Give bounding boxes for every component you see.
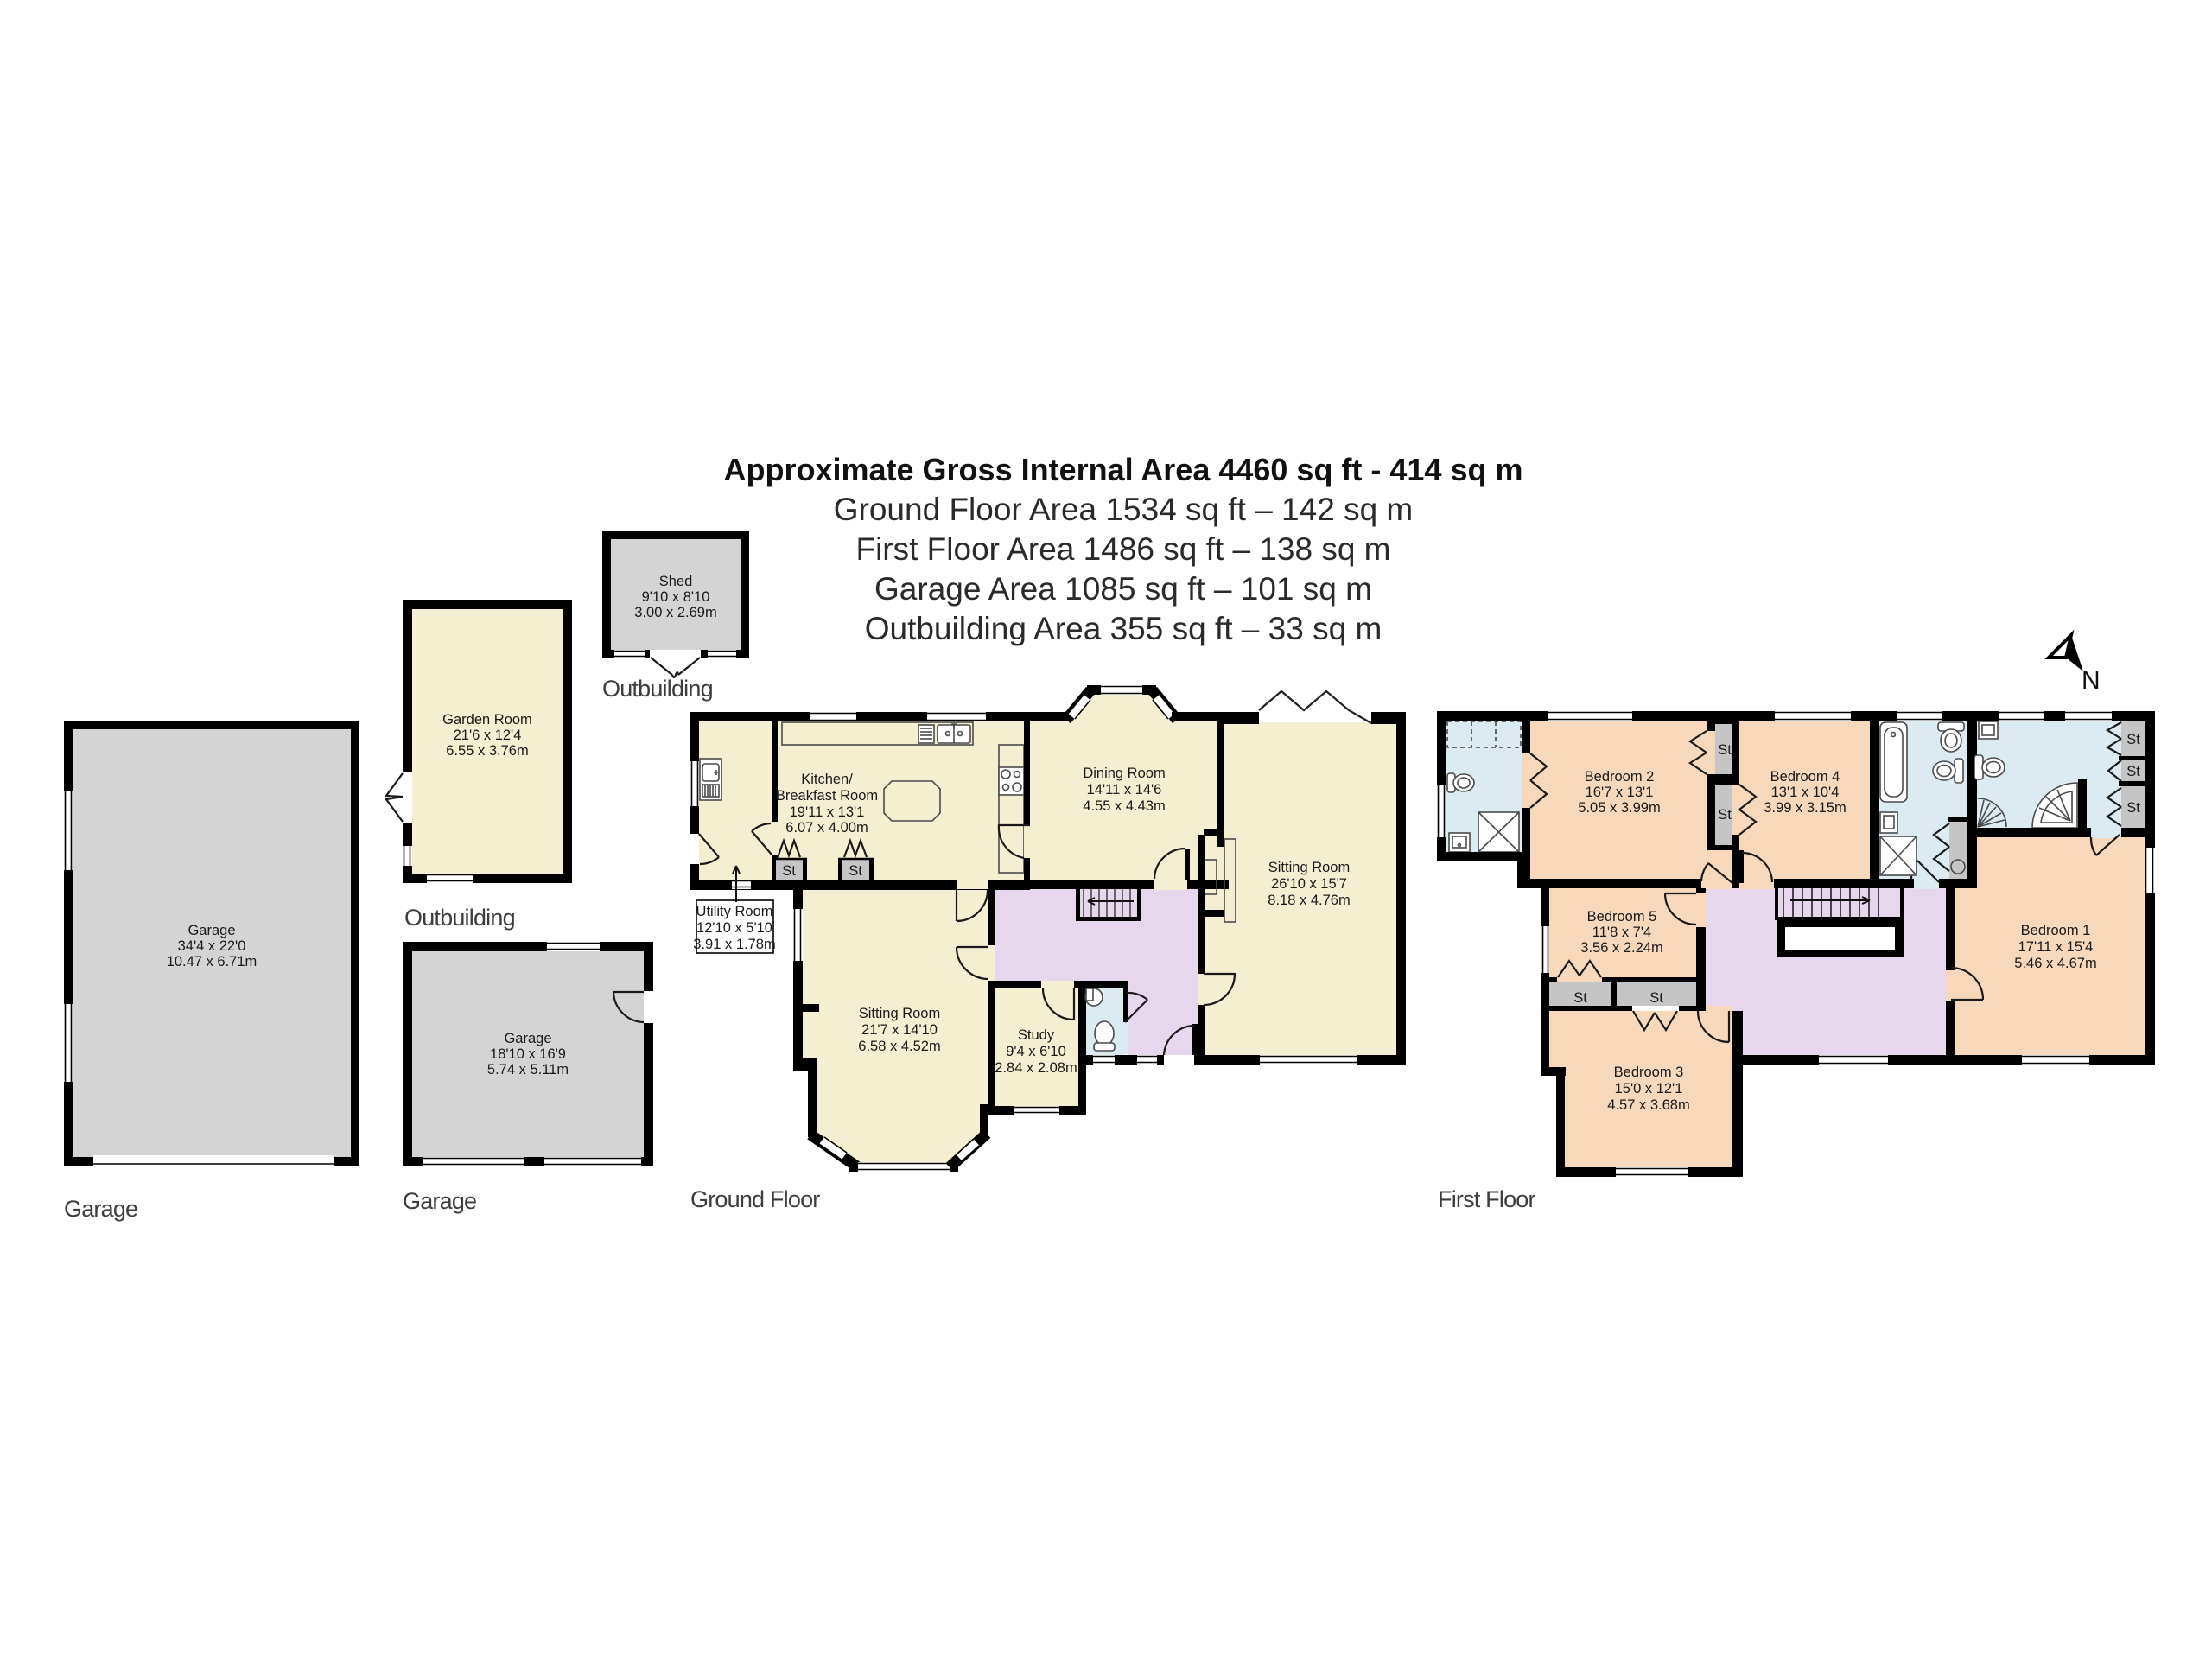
svg-text:16'7 x 13'1: 16'7 x 13'1 bbox=[1586, 785, 1654, 800]
svg-text:4.55 x 4.43m: 4.55 x 4.43m bbox=[1083, 798, 1165, 814]
svg-text:Garage: Garage bbox=[188, 923, 235, 938]
svg-text:Bedroom 4: Bedroom 4 bbox=[1770, 769, 1840, 785]
svg-text:St: St bbox=[849, 863, 862, 879]
svg-text:12'10 x 5'10: 12'10 x 5'10 bbox=[696, 920, 772, 936]
svg-text:5.05 x 3.99m: 5.05 x 3.99m bbox=[1578, 800, 1660, 816]
svg-text:Shed: Shed bbox=[659, 574, 693, 589]
svg-text:21'6 x 12'4: 21'6 x 12'4 bbox=[454, 728, 522, 743]
svg-text:11'8 x 7'4: 11'8 x 7'4 bbox=[1592, 925, 1651, 940]
svg-text:Study: Study bbox=[1018, 1027, 1055, 1043]
svg-text:Sitting Room: Sitting Room bbox=[1268, 860, 1350, 875]
svg-text:15'0 x 12'1: 15'0 x 12'1 bbox=[1615, 1081, 1683, 1096]
svg-text:10.47 x 6.71m: 10.47 x 6.71m bbox=[167, 954, 257, 969]
svg-text:3.91 x 1.78m: 3.91 x 1.78m bbox=[693, 937, 775, 952]
svg-text:Garage Area 1085 sq ft – 101 s: Garage Area 1085 sq ft – 101 sq m bbox=[874, 571, 1372, 607]
svg-text:Ground Floor: Ground Floor bbox=[690, 1186, 820, 1212]
svg-text:6.55 x 3.76m: 6.55 x 3.76m bbox=[446, 743, 528, 759]
svg-text:St: St bbox=[1718, 807, 1732, 823]
svg-text:Garage: Garage bbox=[403, 1188, 476, 1214]
svg-text:Garden Room: Garden Room bbox=[442, 712, 532, 728]
svg-text:First Floor: First Floor bbox=[1438, 1186, 1536, 1212]
svg-text:St: St bbox=[1649, 990, 1663, 1006]
svg-text:Bedroom 2: Bedroom 2 bbox=[1585, 769, 1655, 785]
svg-text:4.57 x 3.68m: 4.57 x 3.68m bbox=[1607, 1097, 1689, 1113]
svg-text:2.84 x 2.08m: 2.84 x 2.08m bbox=[995, 1060, 1077, 1076]
svg-text:13'1 x 10'4: 13'1 x 10'4 bbox=[1771, 785, 1840, 800]
svg-text:Sitting Room: Sitting Room bbox=[859, 1006, 940, 1021]
svg-text:Garage: Garage bbox=[504, 1031, 551, 1046]
svg-text:Ground Floor Area 1534 sq ft –: Ground Floor Area 1534 sq ft – 142 sq m bbox=[834, 492, 1414, 527]
svg-text:5.46 x 4.67m: 5.46 x 4.67m bbox=[2014, 956, 2096, 971]
svg-text:34'4 x 22'0: 34'4 x 22'0 bbox=[178, 938, 246, 954]
svg-text:Breakfast Room: Breakfast Room bbox=[776, 788, 878, 804]
svg-text:Outbuilding: Outbuilding bbox=[404, 905, 515, 931]
svg-text:Approximate Gross Internal Are: Approximate Gross Internal Area 4460 sq … bbox=[724, 452, 1523, 487]
svg-text:First Floor Area 1486 sq ft –: First Floor Area 1486 sq ft – 138 sq m bbox=[855, 531, 1390, 567]
svg-text:Bedroom 5: Bedroom 5 bbox=[1587, 909, 1657, 925]
svg-text:N: N bbox=[2082, 666, 2101, 695]
svg-text:3.00 x 2.69m: 3.00 x 2.69m bbox=[634, 605, 716, 620]
svg-text:9'10 x 8'10: 9'10 x 8'10 bbox=[642, 589, 710, 605]
svg-text:St: St bbox=[2126, 800, 2140, 816]
svg-text:14'11 x 14'6: 14'11 x 14'6 bbox=[1087, 782, 1162, 798]
svg-text:St: St bbox=[782, 863, 796, 879]
svg-text:St: St bbox=[1573, 990, 1587, 1006]
svg-text:Garage: Garage bbox=[64, 1196, 137, 1222]
svg-text:Outbuilding: Outbuilding bbox=[602, 676, 713, 702]
svg-text:Bedroom 1: Bedroom 1 bbox=[2021, 923, 2091, 938]
svg-text:Bedroom 3: Bedroom 3 bbox=[1614, 1065, 1684, 1080]
svg-text:St: St bbox=[2126, 764, 2140, 779]
svg-text:19'11 x 13'1: 19'11 x 13'1 bbox=[790, 804, 865, 820]
svg-text:21'7 x 14'10: 21'7 x 14'10 bbox=[861, 1022, 938, 1038]
svg-text:17'11 x 15'4: 17'11 x 15'4 bbox=[2018, 939, 2094, 955]
svg-text:6.07 x 4.00m: 6.07 x 4.00m bbox=[785, 820, 868, 836]
svg-text:3.56 x 2.24m: 3.56 x 2.24m bbox=[1580, 940, 1662, 956]
svg-text:St: St bbox=[1718, 742, 1732, 758]
svg-text:3.99 x 3.15m: 3.99 x 3.15m bbox=[1764, 800, 1846, 816]
svg-text:26'10 x 15'7: 26'10 x 15'7 bbox=[1271, 876, 1347, 892]
svg-text:Dining Room: Dining Room bbox=[1083, 766, 1165, 781]
svg-text:Outbuilding Area 355 sq ft – 3: Outbuilding Area 355 sq ft – 33 sq m bbox=[865, 611, 1382, 646]
svg-text:Kitchen/: Kitchen/ bbox=[801, 772, 853, 787]
svg-text:9'4 x 6'10: 9'4 x 6'10 bbox=[1006, 1044, 1066, 1059]
svg-text:18'10 x 16'9: 18'10 x 16'9 bbox=[490, 1046, 566, 1062]
svg-text:5.74 x 5.11m: 5.74 x 5.11m bbox=[487, 1062, 569, 1077]
svg-text:6.58 x 4.52m: 6.58 x 4.52m bbox=[858, 1039, 940, 1054]
svg-text:St: St bbox=[2126, 732, 2140, 747]
svg-text:Utility Room: Utility Room bbox=[696, 904, 773, 919]
svg-text:8.18 x 4.76m: 8.18 x 4.76m bbox=[1268, 893, 1350, 908]
